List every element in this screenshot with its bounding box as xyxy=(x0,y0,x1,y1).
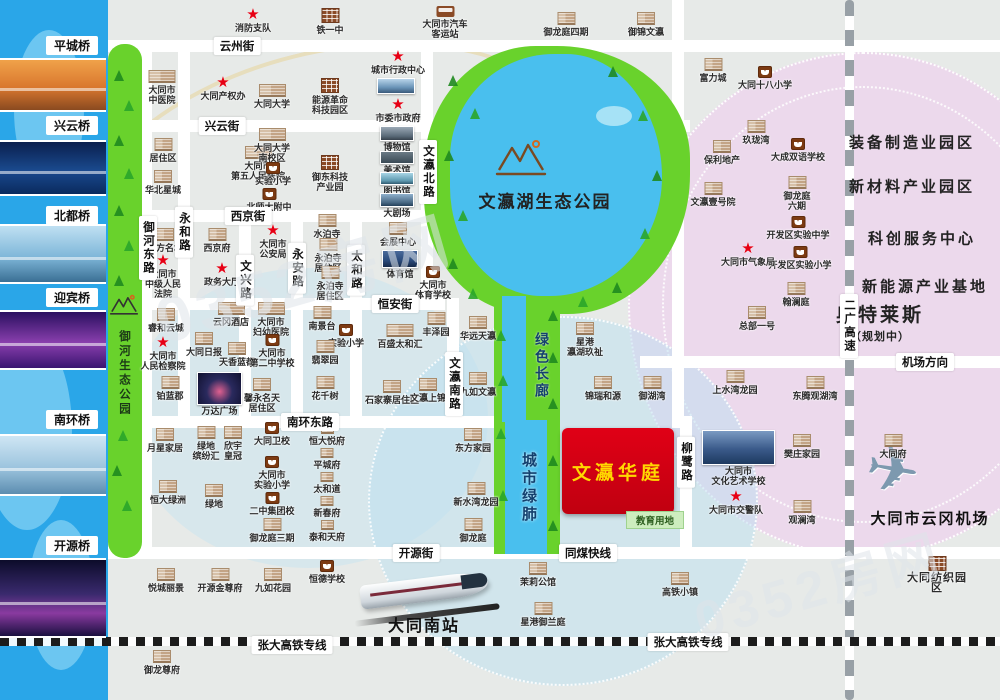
poi-label: 能源革命 科技园区 xyxy=(312,95,348,115)
building-icon xyxy=(205,484,223,497)
poi-label: 御龙庭四期 xyxy=(543,27,588,37)
poi-label: 保利地产 xyxy=(704,155,740,165)
poi-label: 欣宇 皇冠 xyxy=(224,441,242,461)
star-icon: ★ xyxy=(246,8,259,21)
building-icon xyxy=(258,84,285,97)
bridge-label: 北都桥 xyxy=(46,206,98,225)
poi-label: 御龙庭 xyxy=(459,533,486,543)
corridor-river-north xyxy=(502,296,526,422)
tree-icon xyxy=(122,500,132,511)
bridge-label: 迎宾桥 xyxy=(46,288,98,307)
landmark-photo: 大同市 文化艺术学校 xyxy=(702,430,775,465)
tree-icon xyxy=(114,205,124,216)
building-icon xyxy=(154,170,172,183)
building-icon xyxy=(148,70,175,83)
building-icon xyxy=(464,518,482,531)
poi-label: 大同卫校 xyxy=(254,436,290,446)
map-poi: 太和道 xyxy=(313,472,340,494)
building-icon xyxy=(576,322,594,335)
poi-label: 星港 瀛湖玖祉 xyxy=(567,337,603,357)
map-poi: 大同市 实验小学 xyxy=(254,456,290,490)
map-poi: ★大同市 公安局 xyxy=(259,224,286,259)
star-icon: ★ xyxy=(156,254,169,267)
map-poi: ★大同市 人民检察院 xyxy=(140,336,185,371)
tree-icon xyxy=(124,240,134,251)
factory-icon xyxy=(321,8,339,23)
poi-label: 翡翠园 xyxy=(311,355,338,365)
school-icon xyxy=(262,188,276,200)
poi-label: 茉莉公馆 xyxy=(520,577,556,587)
tree-icon xyxy=(118,430,128,441)
poi-label: 御东科技 产业园 xyxy=(312,172,348,192)
tree-icon xyxy=(468,288,478,299)
landmark-photo: 美术馆 xyxy=(380,151,414,164)
road-name-label: 文瀛南路 xyxy=(445,352,463,416)
poi-label: 大同产权办 xyxy=(200,91,245,101)
building-icon xyxy=(157,568,175,581)
tree-icon xyxy=(638,110,648,121)
map-poi: 文瀛上锦 xyxy=(410,378,446,403)
poi-label: 市委市政府 xyxy=(375,113,420,123)
poi-label: 恒大绿洲 xyxy=(150,495,186,505)
poi-label: 大同市 公安局 xyxy=(259,239,286,259)
factory-icon xyxy=(928,556,946,571)
road-name-label: 文瀛北路 xyxy=(419,140,437,204)
poi-label: 大同市 体育学校 xyxy=(415,280,451,300)
building-icon xyxy=(316,376,334,389)
project-name: 文瀛华庭 xyxy=(572,458,664,485)
photo-label: 大同市 文化艺术学校 xyxy=(711,466,765,486)
map-poi: 铁一中 xyxy=(316,8,343,35)
school-icon xyxy=(426,266,440,278)
building-icon xyxy=(427,312,445,325)
factory-icon xyxy=(321,155,339,170)
school-icon xyxy=(339,324,353,336)
map-poi: 东腾观湖湾 xyxy=(792,376,837,401)
bridge-photo xyxy=(0,434,106,496)
poi-label: 御锦文瀛 xyxy=(628,27,664,37)
map-poi: 九如文瀛 xyxy=(460,372,496,397)
city-lung-label: 城市绿肺 xyxy=(518,452,539,524)
tree-icon xyxy=(124,168,134,179)
wenying-lake xyxy=(450,54,662,296)
map-poi: 会展中心 xyxy=(380,222,416,247)
landmark-photo: 体育馆 xyxy=(382,250,418,268)
map-poi: 大同市 中医院 xyxy=(148,70,175,105)
map-poi: 实验小学 xyxy=(255,162,291,186)
map-poi: 大成双语学校 xyxy=(771,138,825,162)
map-poi: 东方家园 xyxy=(455,428,491,453)
poi-label: 大同市 实验小学 xyxy=(254,470,290,490)
zone-label-text: 装备制造业园区 xyxy=(849,135,975,152)
tree-icon xyxy=(470,108,480,119)
small-pond xyxy=(596,106,632,126)
zone-label: 科创服务中心 xyxy=(868,228,976,249)
star-icon: ★ xyxy=(156,336,169,349)
map-poi: 樊庄家园 xyxy=(784,434,820,459)
poi-label: 高铁小镇 xyxy=(662,587,698,597)
poi-label: 上水湾龙园 xyxy=(712,385,757,395)
building-icon xyxy=(156,228,174,241)
building-icon xyxy=(320,448,333,458)
poi-label: 华远天瀛 xyxy=(460,331,496,341)
star-icon: ★ xyxy=(391,50,404,63)
poi-label: 华北星城 xyxy=(145,185,181,195)
map-poi: 恒德学校 xyxy=(309,560,345,584)
airport-label: 大同市云冈机场 xyxy=(870,508,989,529)
bridge-photo xyxy=(0,58,106,112)
photo-label: 大剧场 xyxy=(383,208,410,218)
poi-label: 新春府 xyxy=(313,508,340,518)
building-icon xyxy=(464,428,482,441)
map-poi: 泰和天府 xyxy=(309,520,345,542)
bridge-photo xyxy=(0,140,106,196)
poi-label: 铁一中 xyxy=(316,25,343,35)
poi-label: 大同府 xyxy=(879,449,906,459)
school-icon xyxy=(265,334,279,346)
building-icon xyxy=(788,176,806,189)
poi-label: 大同市汽车 客运站 xyxy=(422,19,467,39)
map-poi: 大同市 第二中学校 xyxy=(249,334,294,368)
poi-label: 恒大悦府 xyxy=(309,436,345,446)
map-poi: 御龙庭 xyxy=(459,518,486,543)
building-icon xyxy=(154,138,172,151)
road-name-label: 御河东路 xyxy=(139,216,157,280)
poi-label: 绿地 xyxy=(205,499,223,509)
building-icon xyxy=(704,58,722,71)
map-poi: 开发区实验中学 xyxy=(766,216,829,240)
road-name-label: 张大高铁专线 xyxy=(648,633,729,651)
landmark-photo: 博物馆 xyxy=(380,126,414,141)
tree-icon xyxy=(114,275,124,286)
poi-label: 悦城丽景 xyxy=(148,583,184,593)
map-poi: 上水湾龙园 xyxy=(712,370,757,395)
tree-icon xyxy=(444,150,454,161)
building-icon xyxy=(263,518,281,531)
tree-icon xyxy=(114,70,124,81)
tree-icon xyxy=(548,310,558,321)
map-poi: 翰澜庭 xyxy=(782,282,809,307)
building-icon xyxy=(386,324,413,337)
building-icon xyxy=(211,568,229,581)
poi-label: 大同十八小学 xyxy=(738,80,792,90)
poi-label: 开发区实验中学 xyxy=(766,230,829,240)
building-icon xyxy=(208,228,226,241)
landmark-photo xyxy=(377,78,415,94)
map-poi: 御龙庭四期 xyxy=(543,12,588,37)
map-poi: ★消防支队 xyxy=(235,8,271,33)
poi-label: 总部一号 xyxy=(739,321,775,331)
tree-icon xyxy=(498,490,508,501)
tree-icon xyxy=(498,375,508,386)
poi-label: 开源金尊府 xyxy=(197,583,242,593)
tree-icon xyxy=(496,428,506,439)
poi-label: 睿和云城 xyxy=(148,323,184,333)
building-icon xyxy=(557,12,575,25)
poi-label: 新水湾龙园 xyxy=(453,497,498,507)
bridge-photo xyxy=(0,224,106,284)
school-icon xyxy=(265,456,279,468)
poi-label: 绿地 缤纷汇 xyxy=(192,441,219,461)
building-icon xyxy=(197,426,215,439)
tree-icon xyxy=(608,66,618,77)
building-icon xyxy=(469,372,487,385)
tree-icon xyxy=(612,282,622,293)
building-icon xyxy=(319,238,337,251)
building-icon xyxy=(258,128,285,141)
tree-icon xyxy=(112,465,122,476)
building-icon xyxy=(748,306,766,319)
map-poi: 锦瑞和源 xyxy=(585,376,621,401)
poi-label: 大同大学 xyxy=(254,99,290,109)
tree-icon xyxy=(124,100,134,111)
map-poi: 文瀛壹号院 xyxy=(690,182,735,207)
poi-label: 会展中心 xyxy=(380,237,416,247)
poi-label: 大同纺织园区 xyxy=(906,573,969,593)
photo-label: 体育馆 xyxy=(386,269,413,279)
road-name-label: 永安路 xyxy=(288,243,306,294)
map-poi: 富力城 xyxy=(699,58,726,83)
poi-label: 城市行政中心 xyxy=(371,65,425,75)
poi-label: 开发区实验小学 xyxy=(768,260,831,270)
building-icon xyxy=(320,520,333,530)
poi-label: 二中集团校 xyxy=(249,506,294,516)
road-name-label: 兴云街 xyxy=(199,117,246,135)
building-icon xyxy=(159,480,177,493)
building-icon xyxy=(383,380,401,393)
poi-label: 花千树 xyxy=(311,391,338,401)
bridge-label: 平城桥 xyxy=(46,36,98,55)
road-name-label: 云州街 xyxy=(214,37,261,55)
map-poi: 御东科技 产业园 xyxy=(312,155,348,192)
photo-label: 万达广场 xyxy=(201,406,237,416)
zone-label-text: 新能源产业基地 xyxy=(862,279,988,296)
education-plot-badge: 教育用地 xyxy=(626,511,684,529)
map-poi: ★大同市气象局 xyxy=(721,242,775,267)
map-poi: 茉莉公馆 xyxy=(520,562,556,587)
road-name-label: 西京街 xyxy=(225,207,272,225)
poi-label: 西京府 xyxy=(203,243,230,253)
south-station-label: 大同南站 xyxy=(388,612,460,636)
tree-icon xyxy=(458,210,468,221)
zone-label: 新材料产业园区 xyxy=(849,176,975,197)
landmark-photo: 万达广场 xyxy=(197,372,242,405)
tree-icon xyxy=(640,228,650,239)
map-poi: 九如花园 xyxy=(255,568,291,593)
road-name-label: 太和路 xyxy=(347,245,365,296)
map-poi: 观澜湾 xyxy=(788,500,815,525)
road-name-label: 同煤快线 xyxy=(559,544,617,562)
river-park-label: 御河生态公园 xyxy=(116,330,132,417)
building-icon xyxy=(467,482,485,495)
poi-label: 平城府 xyxy=(313,460,340,470)
map-poi: 大同市 妇幼医院 xyxy=(253,302,289,337)
building-icon xyxy=(316,340,334,353)
map-poi: 星港御兰庭 xyxy=(520,602,565,627)
zone-label-text: 科创服务中心 xyxy=(868,231,976,248)
zone-label: 新能源产业基地 xyxy=(862,276,988,297)
poi-label: 大同市 人民检察院 xyxy=(140,351,185,371)
map-poi: 二中集团校 xyxy=(249,492,294,516)
building-icon xyxy=(787,282,805,295)
road-name-label: 南环东路 xyxy=(281,413,339,431)
building-icon xyxy=(224,426,242,439)
map-poi: 大同十八小学 xyxy=(738,66,792,90)
poi-label: 云冈酒店 xyxy=(213,317,249,327)
building-icon xyxy=(726,370,744,383)
building-icon xyxy=(228,342,246,355)
building-icon xyxy=(713,140,731,153)
map-poi: 云冈酒店 xyxy=(213,302,249,327)
building-icon xyxy=(747,120,765,133)
poi-label: 大同市 第二中学校 xyxy=(249,348,294,368)
building-icon xyxy=(529,562,547,575)
mountain-logo-icon xyxy=(492,136,550,180)
poi-label: 锦瑞和源 xyxy=(585,391,621,401)
poi-label: 居住区 xyxy=(149,153,176,163)
map-poi: 御龙庭 六期 xyxy=(783,176,810,211)
poi-label: 樊庄家园 xyxy=(784,449,820,459)
map-poi: 大同大学 南校区 xyxy=(254,128,290,163)
road-name-label: 张大高铁专线 xyxy=(252,636,333,654)
road-name-label: 二广高速 xyxy=(840,294,858,358)
star-icon: ★ xyxy=(215,262,228,275)
building-icon xyxy=(704,182,722,195)
building-icon xyxy=(318,214,336,227)
building-icon xyxy=(594,376,612,389)
school-icon xyxy=(793,246,807,258)
building-icon xyxy=(156,428,174,441)
building-icon xyxy=(157,308,175,321)
poi-label: 东腾观湖湾 xyxy=(792,391,837,401)
road-name-label: 文兴路 xyxy=(236,255,254,306)
building-icon xyxy=(320,496,333,506)
building-icon xyxy=(195,332,213,345)
map-poi: 新春府 xyxy=(313,496,340,518)
tree-icon xyxy=(578,296,588,307)
map-poi: ★大同市交警队 xyxy=(709,490,763,515)
bridge-label: 兴云桥 xyxy=(46,116,98,135)
poi-label: 九如文瀛 xyxy=(460,387,496,397)
map-poi: 花千树 xyxy=(311,376,338,401)
map-poi: ★城市行政中心 xyxy=(371,50,425,75)
map-poi: 大同市 体育学校 xyxy=(415,266,451,300)
green-corridor-label: 绿色长廊 xyxy=(532,332,552,400)
building-icon xyxy=(161,376,179,389)
school-icon xyxy=(758,66,772,78)
map-poi: ★市委市政府 xyxy=(375,98,420,123)
building-icon xyxy=(793,500,811,513)
tree-icon xyxy=(496,330,506,341)
school-icon xyxy=(265,492,279,504)
project-highlight-block[interactable]: 文瀛华庭 xyxy=(562,428,674,514)
road-name-label: 开源街 xyxy=(393,544,440,562)
tree-icon xyxy=(448,75,458,86)
building-icon xyxy=(253,378,271,391)
poi-label: 翰澜庭 xyxy=(782,297,809,307)
map-poi: 高铁小镇 xyxy=(662,572,698,597)
map-poi: ★大同产权办 xyxy=(200,76,245,101)
star-icon: ★ xyxy=(729,490,742,503)
map-poi: 开源金尊府 xyxy=(197,568,242,593)
poi-label: 政务大厅 xyxy=(204,277,240,287)
bridge-photo xyxy=(0,558,106,638)
map-poi: 玖珑湾 xyxy=(742,120,769,145)
map-poi: 华北星城 xyxy=(145,170,181,195)
tree-icon xyxy=(114,135,124,146)
map-poi: 开发区实验小学 xyxy=(768,246,831,270)
building-icon xyxy=(469,316,487,329)
building-icon xyxy=(806,376,824,389)
map-poi: 平城府 xyxy=(313,448,340,470)
poi-label: 馨永名天 居住区 xyxy=(244,393,280,413)
map-poi: 新水湾龙园 xyxy=(453,482,498,507)
poi-label: 消防支队 xyxy=(235,23,271,33)
zone-label: 装备制造业园区 xyxy=(849,132,975,153)
mountain-logo-icon xyxy=(108,292,140,318)
poi-label: 大同市交警队 xyxy=(709,505,763,515)
map-poi: ★政务大厅 xyxy=(204,262,240,287)
road xyxy=(350,210,362,428)
map-poi: 水泊寺 xyxy=(313,214,340,239)
road-name-label: 永和路 xyxy=(175,207,193,258)
poi-label: 文瀛壹号院 xyxy=(690,197,735,207)
poi-label: 泰和天府 xyxy=(309,532,345,542)
poi-label: 恒德学校 xyxy=(309,574,345,584)
building-icon xyxy=(257,302,284,315)
map-poi: 铂蓝郡 xyxy=(156,376,183,401)
poi-label: 御龙庭三期 xyxy=(249,533,294,543)
building-icon xyxy=(884,434,902,447)
map-poi: 大同府 xyxy=(879,434,906,459)
tree-icon xyxy=(548,455,558,466)
poi-label: 太和道 xyxy=(313,484,340,494)
zone-label-text: 新材料产业园区 xyxy=(849,179,975,196)
poi-label: 玖珑湾 xyxy=(742,135,769,145)
map-poi: 百盛太和汇 xyxy=(377,324,422,349)
map-poi: 月星家居 xyxy=(147,428,183,453)
bus-icon xyxy=(436,6,454,17)
building-icon xyxy=(637,12,655,25)
poi-label: 铂蓝郡 xyxy=(156,391,183,401)
map-poi: 总部一号 xyxy=(739,306,775,331)
map-poi: 绿地 xyxy=(205,484,223,509)
map-poi: 保利地产 xyxy=(704,140,740,165)
map-poi: 恒大绿洲 xyxy=(150,480,186,505)
star-icon: ★ xyxy=(741,242,754,255)
road-name-label: 机场方向 xyxy=(896,353,954,371)
lake-park-label: 文瀛湖生态公园 xyxy=(479,188,612,213)
building-icon xyxy=(793,434,811,447)
bridge-label: 南环桥 xyxy=(46,410,98,429)
poi-label: 御湖湾 xyxy=(638,391,665,401)
building-icon xyxy=(313,306,331,319)
map-poi: 馨永名天 居住区 xyxy=(244,378,280,413)
poi-label: 丰泽园 xyxy=(422,327,449,337)
school-icon xyxy=(791,216,805,228)
star-icon: ★ xyxy=(391,98,404,111)
building-icon xyxy=(643,376,661,389)
poi-label: 实验小学 xyxy=(255,176,291,186)
building-icon xyxy=(153,650,171,663)
map-poi: 华远天瀛 xyxy=(460,316,496,341)
school-icon xyxy=(320,560,334,572)
map-poi: 睿和云城 xyxy=(148,308,184,333)
road-name-label: 恒安街 xyxy=(372,295,419,313)
landmark-photo: 大剧场 xyxy=(380,193,414,207)
map-poi: 丰泽园 xyxy=(422,312,449,337)
map-poi: 大同大学 xyxy=(254,84,290,109)
